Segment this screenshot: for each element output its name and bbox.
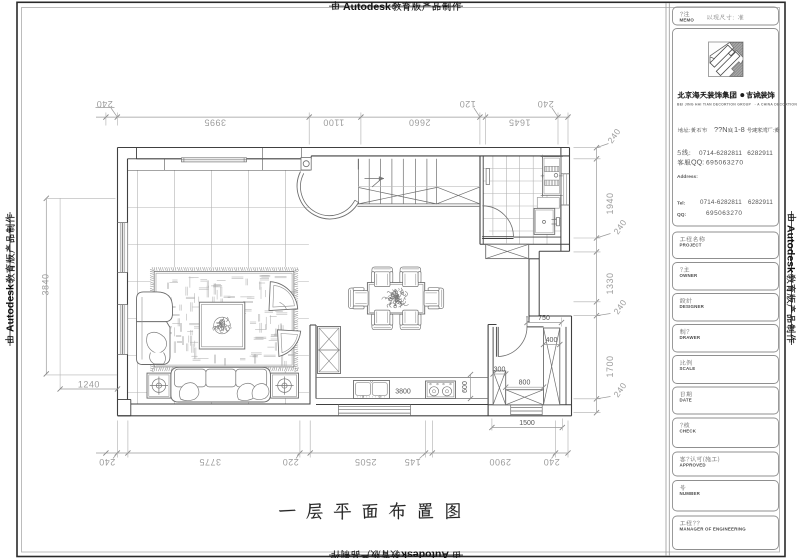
svg-text:3775: 3775 bbox=[199, 457, 221, 467]
svg-text:DATE: DATE bbox=[680, 398, 692, 403]
svg-text:120: 120 bbox=[459, 99, 476, 109]
svg-text:750: 750 bbox=[538, 315, 550, 322]
svg-text:BEI JING HAI TIAN DECORTION GR: BEI JING HAI TIAN DECORTION GROUP · A CH… bbox=[677, 103, 797, 107]
svg-text:2660: 2660 bbox=[408, 118, 430, 128]
svg-text:3995: 3995 bbox=[204, 118, 226, 128]
svg-text:QQ:: QQ: bbox=[677, 212, 686, 218]
svg-text:OWNER: OWNER bbox=[680, 273, 698, 278]
svg-text:DRAWER: DRAWER bbox=[680, 335, 701, 340]
svg-text:MEMO: MEMO bbox=[680, 18, 695, 23]
svg-text:1330: 1330 bbox=[605, 272, 615, 294]
svg-text:400: 400 bbox=[546, 337, 558, 344]
svg-text:1-8: 1-8 bbox=[734, 125, 745, 134]
svg-text:1100: 1100 bbox=[323, 118, 344, 128]
svg-text:NUMBER: NUMBER bbox=[680, 491, 701, 496]
svg-text:2505: 2505 bbox=[354, 457, 376, 467]
svg-text:CHECK: CHECK bbox=[680, 429, 697, 434]
svg-text:695063270: 695063270 bbox=[706, 159, 744, 166]
svg-text:695063270: 695063270 bbox=[706, 210, 743, 217]
svg-text:1940: 1940 bbox=[605, 192, 615, 214]
svg-text:Tel:: Tel: bbox=[677, 201, 686, 207]
svg-text:6282911: 6282911 bbox=[747, 150, 773, 157]
svg-text:1500: 1500 bbox=[519, 420, 535, 427]
svg-text:1240: 1240 bbox=[78, 380, 100, 390]
svg-text:3840: 3840 bbox=[40, 273, 50, 295]
svg-text:600: 600 bbox=[462, 381, 469, 393]
svg-text:300: 300 bbox=[494, 366, 506, 373]
svg-text:APPROVED: APPROVED bbox=[680, 463, 706, 468]
svg-text:??N: ??N bbox=[714, 125, 728, 134]
svg-text:6282911: 6282911 bbox=[748, 199, 773, 206]
svg-text:DESIGNER: DESIGNER bbox=[680, 304, 705, 309]
svg-text:2900: 2900 bbox=[489, 457, 511, 467]
svg-text:QQ:: QQ: bbox=[691, 158, 704, 167]
svg-text:1645: 1645 bbox=[508, 118, 530, 128]
svg-text:0714-6282811: 0714-6282811 bbox=[700, 199, 742, 206]
svg-text:Address:: Address: bbox=[677, 174, 698, 180]
svg-text:PROJECT: PROJECT bbox=[680, 243, 702, 248]
svg-text:SCALE: SCALE bbox=[680, 366, 696, 371]
svg-text:0714-6282811: 0714-6282811 bbox=[699, 150, 742, 157]
svg-text:MANAGER OF ENGINEERING: MANAGER OF ENGINEERING bbox=[680, 527, 747, 532]
svg-text:3800: 3800 bbox=[395, 389, 411, 396]
svg-text:145: 145 bbox=[404, 457, 421, 467]
svg-text:240: 240 bbox=[537, 99, 554, 109]
svg-text:1700: 1700 bbox=[605, 355, 615, 377]
svg-text:800: 800 bbox=[519, 380, 531, 387]
